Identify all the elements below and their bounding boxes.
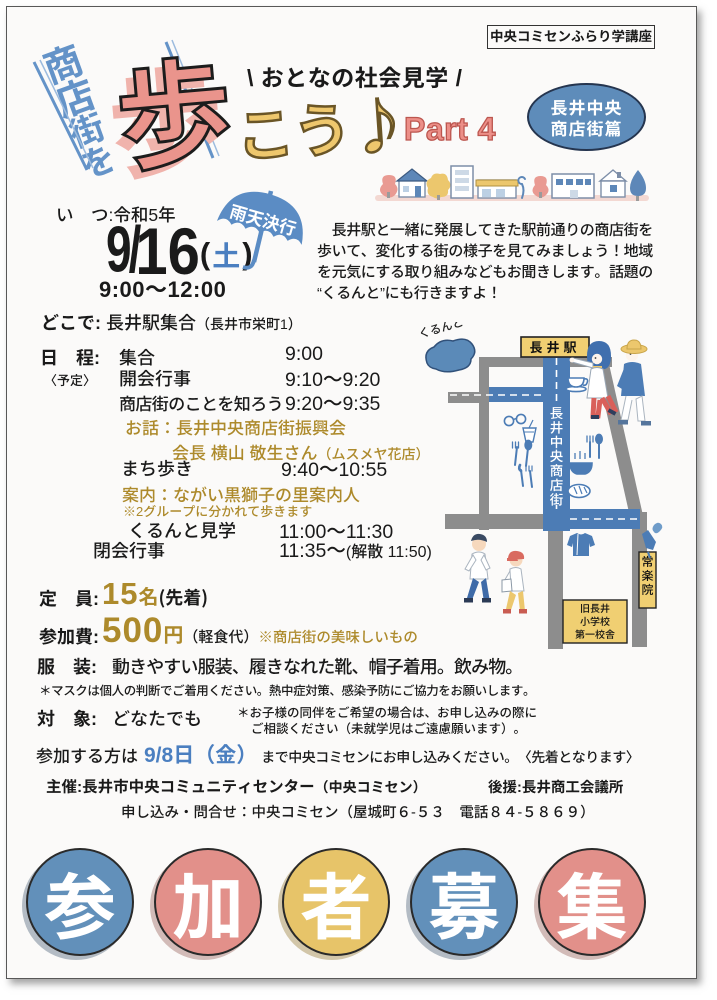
svg-text:長井中央商店街: 長井中央商店街 — [550, 402, 564, 508]
svg-text:旧長井小学校第一校舎: 旧長井小学校第一校舎 — [575, 600, 615, 641]
svg-text:常楽院: 常楽院 — [641, 553, 653, 598]
svg-text:長井駅: 長井駅 — [529, 337, 580, 356]
